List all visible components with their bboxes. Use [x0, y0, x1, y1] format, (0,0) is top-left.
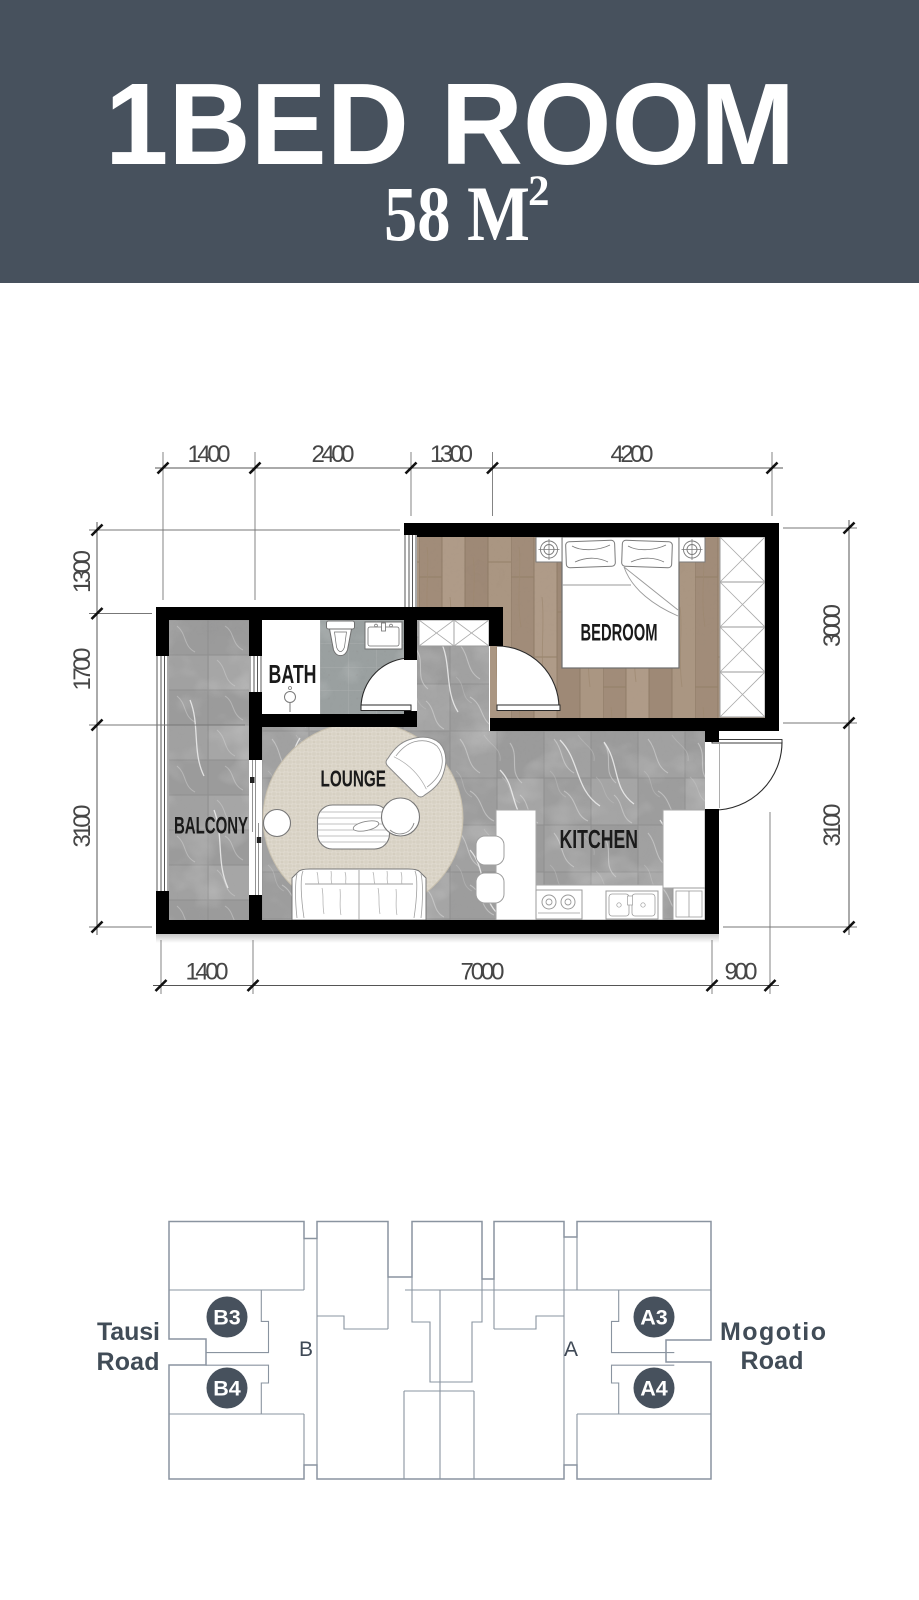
svg-text:Tausi: Tausi	[97, 1318, 160, 1346]
svg-text:3100: 3100	[819, 804, 846, 847]
svg-text:B: B	[299, 1338, 313, 1361]
svg-text:KITCHEN: KITCHEN	[560, 824, 639, 854]
svg-text:7000: 7000	[461, 959, 505, 986]
svg-text:BALCONY: BALCONY	[174, 813, 248, 840]
svg-text:2400: 2400	[312, 441, 355, 468]
svg-text:1700: 1700	[69, 648, 96, 691]
svg-text:1300: 1300	[69, 550, 96, 593]
svg-text:LOUNGE: LOUNGE	[321, 766, 387, 792]
svg-text:1300: 1300	[430, 441, 473, 468]
svg-text:58 M: 58 M	[384, 170, 530, 257]
svg-text:B4: B4	[213, 1377, 241, 1401]
svg-text:BATH: BATH	[269, 659, 317, 689]
svg-text:1400: 1400	[186, 959, 229, 986]
svg-text:4200: 4200	[611, 441, 654, 468]
svg-text:3000: 3000	[819, 604, 846, 647]
svg-text:Road: Road	[97, 1348, 160, 1376]
svg-text:Road: Road	[741, 1347, 804, 1375]
svg-text:A3: A3	[640, 1306, 668, 1330]
svg-text:900: 900	[725, 959, 758, 986]
svg-text:A: A	[564, 1338, 578, 1361]
svg-text:A4: A4	[640, 1377, 668, 1401]
svg-text:BEDROOM: BEDROOM	[581, 620, 658, 647]
svg-text:3100: 3100	[69, 805, 96, 848]
svg-text:1400: 1400	[188, 441, 231, 468]
svg-text:2: 2	[528, 168, 550, 215]
svg-text:Mogotio: Mogotio	[720, 1318, 826, 1346]
svg-text:B3: B3	[213, 1306, 241, 1330]
